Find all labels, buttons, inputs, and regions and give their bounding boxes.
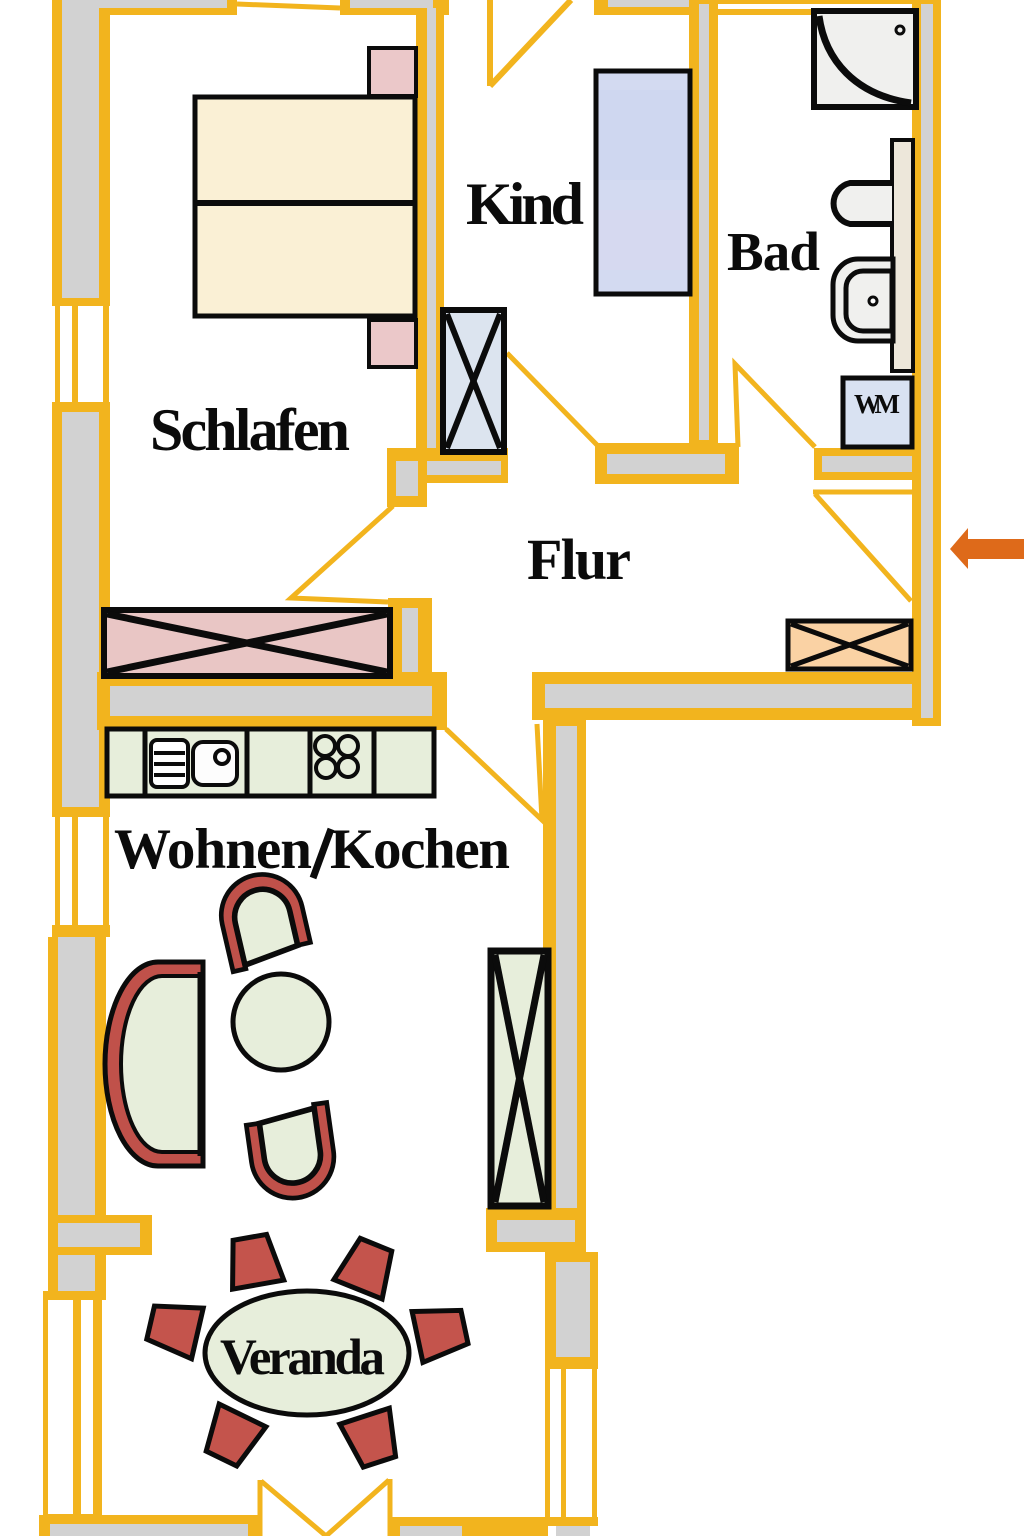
svg-text:Kind: Kind — [466, 171, 584, 237]
svg-text:Kochen: Kochen — [330, 818, 510, 881]
svg-text:Veranda: Veranda — [220, 1330, 385, 1386]
svg-text:Bad: Bad — [727, 221, 820, 282]
svg-text:Schlafen: Schlafen — [150, 397, 350, 463]
svg-text:Flur: Flur — [527, 527, 631, 592]
svg-text:Wohnen: Wohnen — [114, 818, 312, 881]
svg-text:WM: WM — [854, 389, 900, 419]
